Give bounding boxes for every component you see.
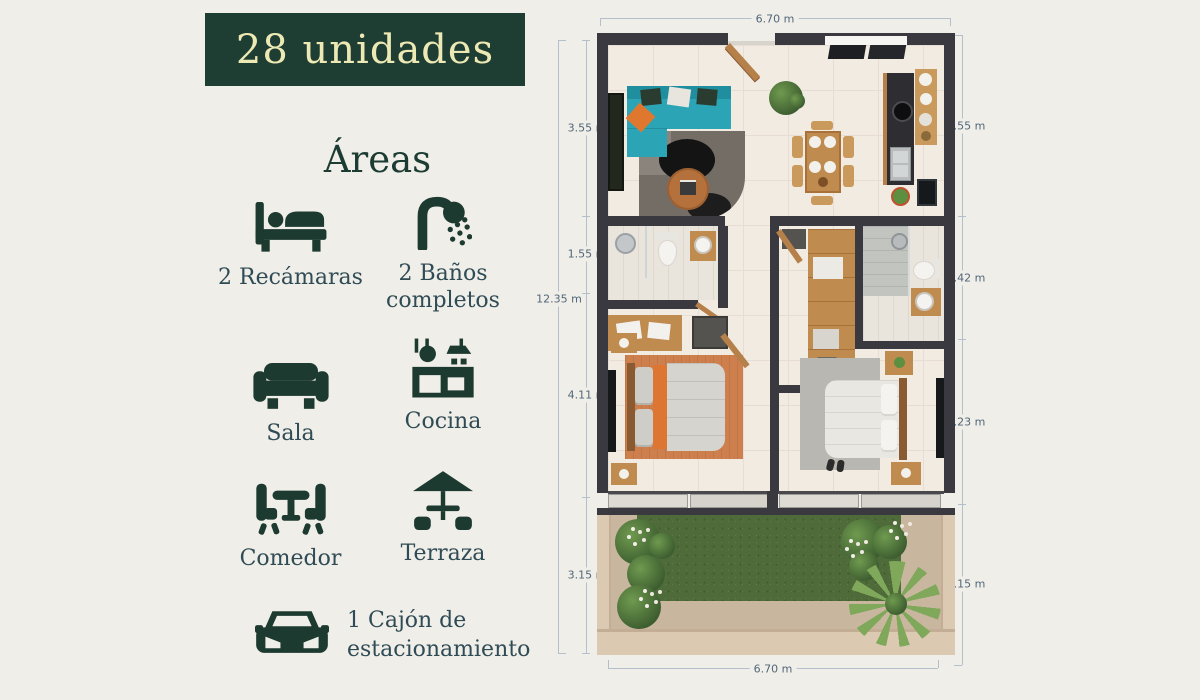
dim-cap [938,660,939,668]
dim-tick [582,216,590,217]
kitchen-wall-art [917,179,937,206]
feature-kitchen-label: Cocina [405,408,482,435]
terrace-flowers [893,521,897,525]
kitchen-shelf [915,69,937,145]
wall-bath1-right [718,226,728,308]
living-wall-art [608,93,624,191]
shower-1 [615,233,636,254]
feature-living-label: Sala [266,420,314,447]
feature-dining-label: Comedor [240,545,342,572]
feature-dining: Comedor [213,477,368,572]
feature-bathrooms-label: 2 Baños completos [373,260,513,314]
flyer-canvas: { "badge": { "label": "28 unidades" }, "… [0,0,1200,700]
bed-1-headboard [627,363,635,451]
dining-table [805,131,841,193]
dim-cap [950,18,951,26]
dining-chair [811,196,833,205]
shower-2-glass [908,226,910,296]
wall-bath1-bottom [608,300,698,309]
dim-cap [600,18,601,26]
terrace-flowers [643,589,647,593]
dim-bottom-label: 6.70 m [750,662,797,677]
floor-plan [597,33,955,655]
wall-bath2-bottom [855,341,944,349]
bed-1-pillow [635,409,653,447]
coffee-table [667,168,709,210]
dim-cap [558,653,566,654]
dining-icon [254,477,328,535]
salad-bowl [891,187,910,206]
shower-icon [414,192,472,250]
dim-left-total-label: 12.35 m [532,292,586,307]
dim-tick [958,216,966,217]
slider-panel [608,494,688,508]
units-badge-label: 28 unidades [236,27,494,73]
sofa-pillow [667,87,691,108]
toilet-1 [658,240,677,266]
nightstand [885,351,913,375]
bathroom-2 [863,226,944,341]
dim-tick [958,339,966,340]
feature-bedrooms: 2 Recámaras [213,196,368,291]
terrace-icon [411,472,475,530]
dining-chair [811,121,833,130]
slider-panel [779,494,859,508]
wall-interior [608,216,725,226]
shower-2-head [891,233,908,250]
terrace-plant [885,593,907,615]
dim-cap [558,40,566,41]
sink-2 [915,292,934,311]
nightstand [891,462,921,485]
terrace-plant [873,525,907,559]
dim-top-label: 6.70 m [752,12,799,27]
kitchen-icon [410,340,476,398]
wall-top [597,33,728,45]
kitchen-counter [887,73,914,185]
dining-chair [792,165,803,187]
window-sill [825,36,907,45]
feature-living: Sala [213,352,368,447]
bedroom-1-tv [608,370,616,452]
feature-bedrooms-label: 2 Recámaras [218,264,363,291]
dim-left-total-line [558,40,559,653]
bed-1-duvet [667,363,725,451]
window-glass [828,45,866,59]
sofa-icon [253,352,329,410]
dim-cap [582,40,590,41]
bed-2-pillow [881,420,897,452]
wall-bath2-left [855,226,863,349]
nightstand [611,333,637,353]
wall-interior [770,216,944,226]
feature-parking-label: 1 Cajón de estacionamiento [347,606,527,664]
sofa-chaise [627,128,667,157]
toilet-2 [913,261,935,280]
dim-tick [958,504,966,505]
units-badge: 28 unidades [205,13,525,86]
dim-cap [954,35,962,36]
wall-left [597,33,608,493]
bed-2-headboard [899,378,907,460]
bed-2-pillow [881,384,897,416]
dining-chair [843,136,854,158]
feature-bathrooms: 2 Baños completos [373,192,513,314]
bedroom-2-tv [936,378,944,458]
nightstand [611,463,637,485]
dim-tick [582,293,590,294]
feature-terrace-label: Terraza [401,540,486,567]
feature-kitchen: Cocina [373,340,513,435]
dining-chair [843,165,854,187]
dim-cap [608,660,609,668]
terrace-flowers [849,539,853,543]
wall-top [775,33,825,45]
wall-right [944,33,955,493]
bed-icon [253,196,329,254]
dim-cap [582,653,590,654]
dim-cap [954,665,962,666]
bathroom-1 [608,226,718,300]
dim-tick [582,497,590,498]
car-icon [255,611,333,660]
feature-terrace: Terraza [373,472,513,567]
dining-chair [792,136,803,158]
feature-parking: 1 Cajón de estacionamiento [255,606,535,664]
slider-panel [861,494,941,508]
ottoman [692,316,728,349]
terrace-plant [649,533,675,559]
potted-plant [789,93,805,109]
areas-title: Áreas [255,138,500,181]
slider-panel [690,494,768,508]
shower-glass [645,226,647,278]
toilet-1-tank [655,232,677,240]
terrace-plant [617,585,661,629]
sofa-pillow [640,88,662,106]
window-glass [868,45,906,59]
sink-1 [694,236,712,254]
wall-center [770,216,779,493]
sofa-pillow [696,88,717,106]
terrace-flowers [631,527,635,531]
bed-1-pillow [635,367,653,405]
entry-threshold [728,41,775,45]
